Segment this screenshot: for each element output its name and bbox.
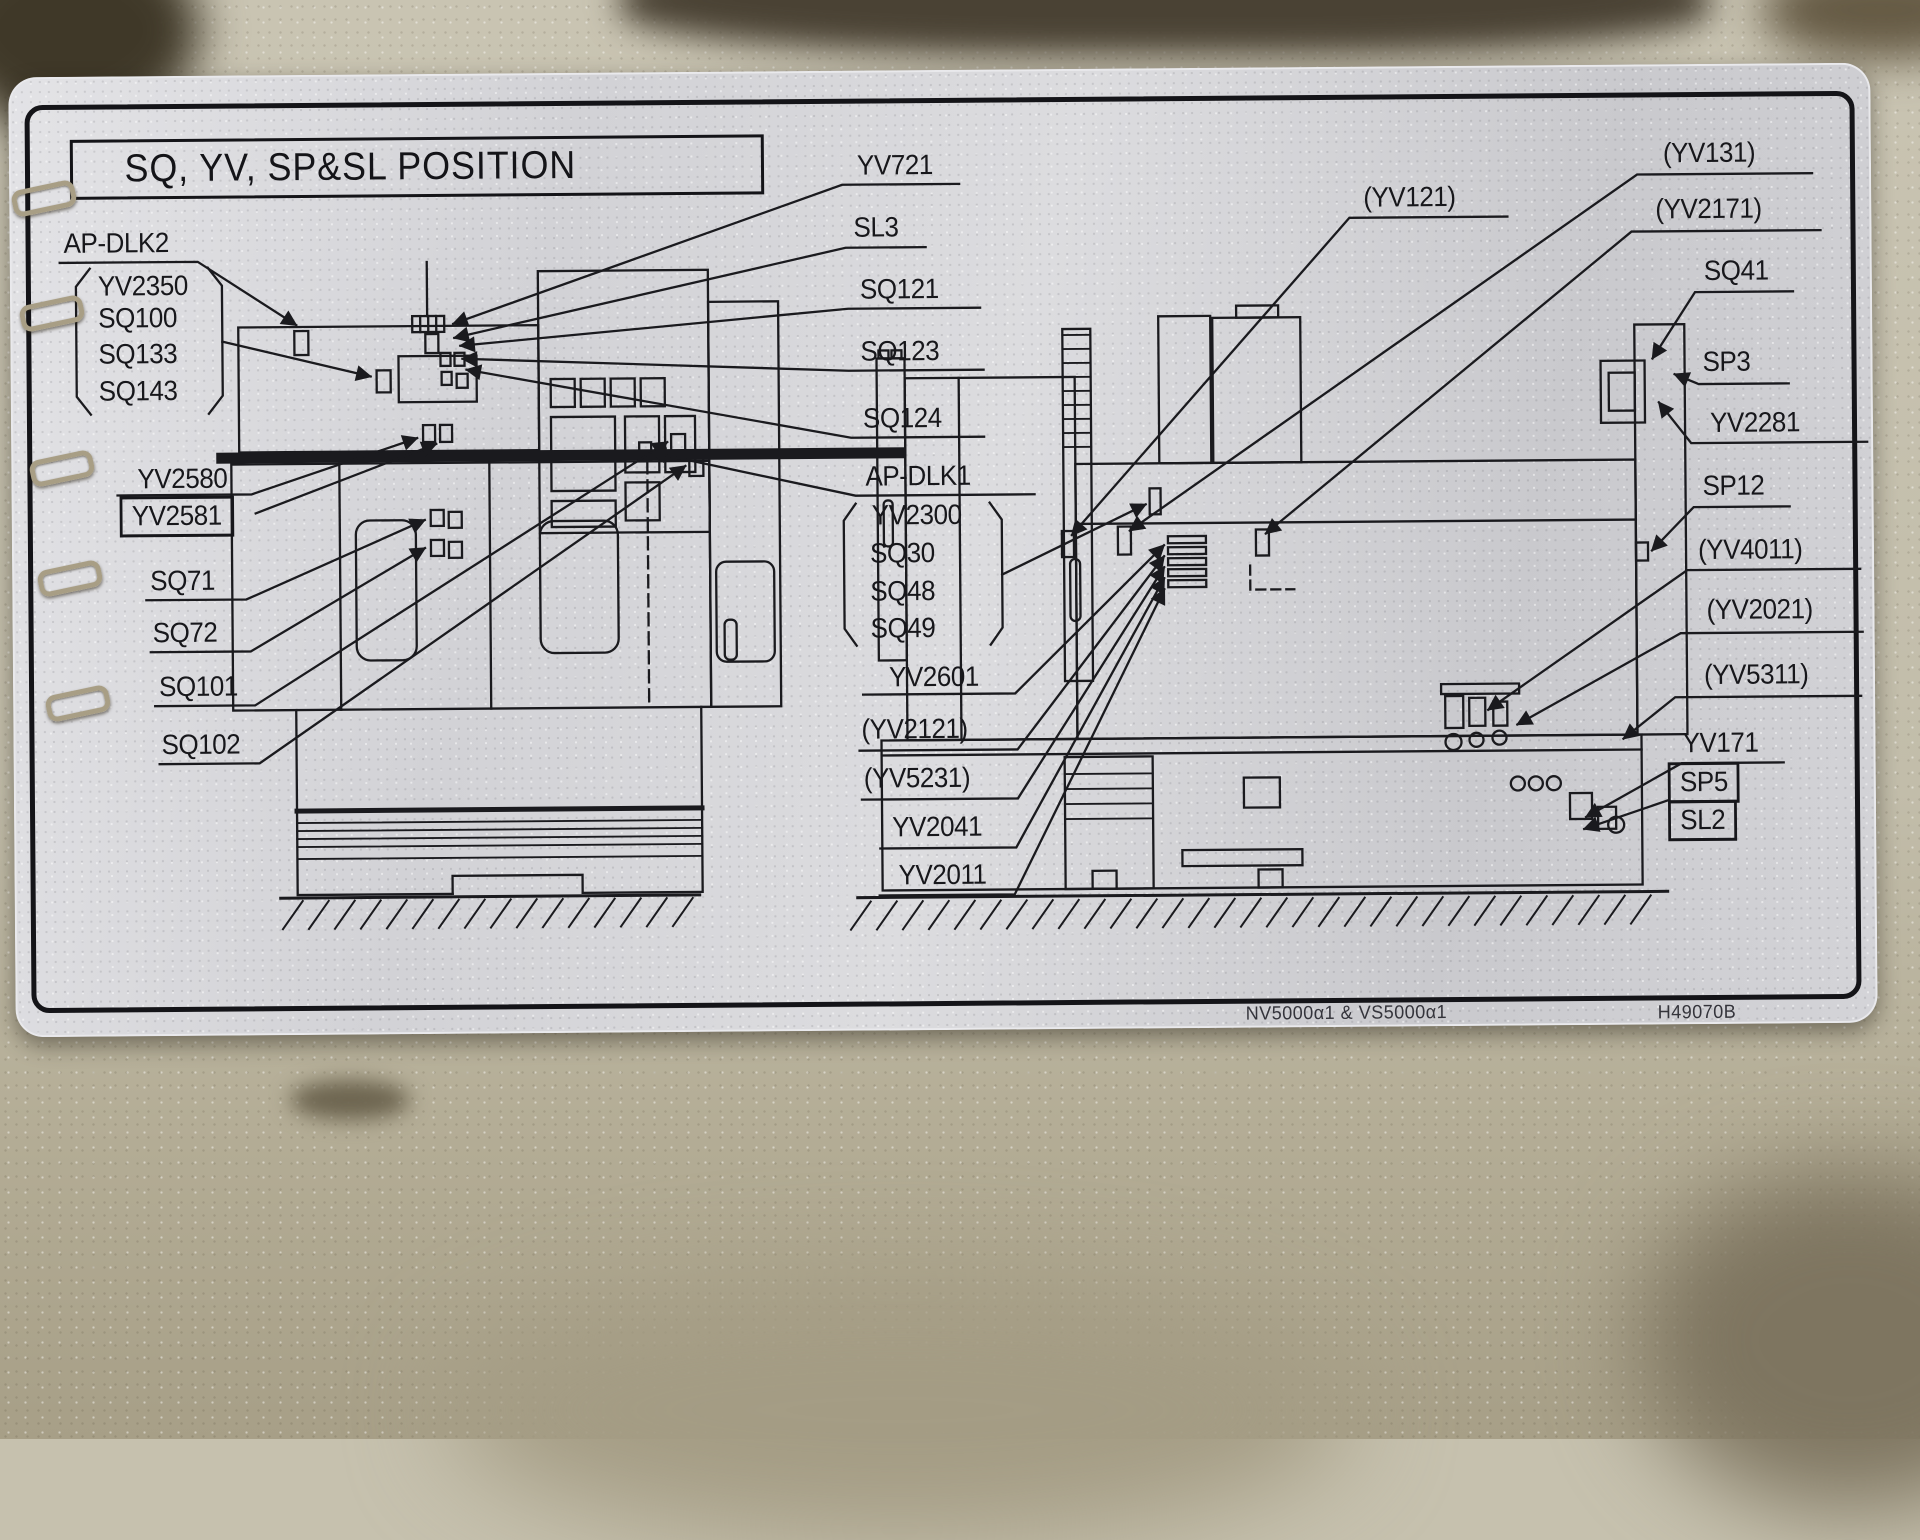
label-ap-dlk1: AP-DLK1 — [865, 461, 971, 491]
label-sq121: SQ121 — [860, 274, 939, 304]
label-yv2350: YV2350 — [98, 271, 188, 301]
label-yv2580: YV2580 — [137, 464, 227, 494]
ground-hatching-left — [283, 898, 693, 929]
label-yv2281: YV2281 — [1710, 407, 1800, 437]
label-sq71: SQ71 — [150, 566, 215, 596]
drawing-number: H49070B — [1658, 1002, 1737, 1025]
label-sq123: SQ123 — [860, 336, 939, 366]
label-yv5311: (YV5311) — [1704, 659, 1809, 689]
shadow-bottom-middle — [450, 1280, 1350, 1540]
label-yv2300: YV2300 — [872, 500, 962, 530]
label-yv131: (YV131) — [1663, 138, 1756, 168]
label-sp12: SP12 — [1702, 471, 1764, 501]
label-ap-dlk2: AP-DLK2 — [63, 228, 169, 258]
label-yv121: (YV121) — [1363, 182, 1456, 212]
shadow-top-right — [1760, 0, 1920, 60]
label-sq124: SQ124 — [863, 403, 942, 433]
label-yv5231: (YV5231) — [864, 763, 971, 793]
label-yv2171: (YV2171) — [1655, 194, 1762, 224]
title-box: SQ, YV, SP&SL POSITION — [70, 134, 764, 199]
label-yv2021: (YV2021) — [1706, 594, 1813, 624]
label-yv2011: YV2011 — [898, 860, 986, 890]
label-yv721: YV721 — [857, 150, 933, 180]
label-sl3: SL3 — [853, 212, 898, 242]
label-sq41: SQ41 — [1704, 256, 1769, 286]
position-placard-plate: SQ, YV, SP&SL POSITION AP-DLK2 YV2350 SQ… — [8, 63, 1877, 1038]
ground-hatching-right — [851, 895, 1651, 929]
wall-smudge — [290, 1080, 410, 1120]
model-designation: NV5000α1 & VS5000α1 — [1246, 1002, 1448, 1026]
placard-diagram — [8, 63, 1877, 1038]
label-yv2121: (YV2121) — [861, 714, 968, 744]
page-title: SQ, YV, SP&SL POSITION — [73, 144, 576, 192]
label-yv2581: YV2581 — [120, 496, 234, 538]
left-machine-drawing — [215, 258, 910, 929]
shadow-top-bar — [620, 0, 1710, 55]
label-sq143: SQ143 — [99, 376, 178, 406]
label-sq49: SQ49 — [870, 613, 935, 643]
shadow-bottom-right — [1640, 1170, 1920, 1510]
label-sq101: SQ101 — [159, 672, 238, 702]
photo-of-machine-placard: { "plate": { "title": "SQ, YV, SP&SL POS… — [0, 0, 1920, 1439]
label-sl2: SL2 — [1668, 800, 1737, 842]
label-sq48: SQ48 — [870, 576, 935, 606]
label-sq133: SQ133 — [98, 339, 177, 369]
label-sq30: SQ30 — [870, 538, 935, 568]
label-yv2601: YV2601 — [889, 662, 979, 692]
label-sq102: SQ102 — [161, 730, 240, 760]
label-yv171: YV171 — [1682, 728, 1758, 758]
label-sp5: SP5 — [1668, 762, 1740, 804]
label-sq100: SQ100 — [98, 303, 177, 333]
label-sp3: SP3 — [1702, 347, 1750, 377]
label-sq72: SQ72 — [153, 618, 218, 648]
label-yv2041: YV2041 — [892, 812, 982, 842]
label-yv4011: (YV4011) — [1698, 534, 1803, 564]
